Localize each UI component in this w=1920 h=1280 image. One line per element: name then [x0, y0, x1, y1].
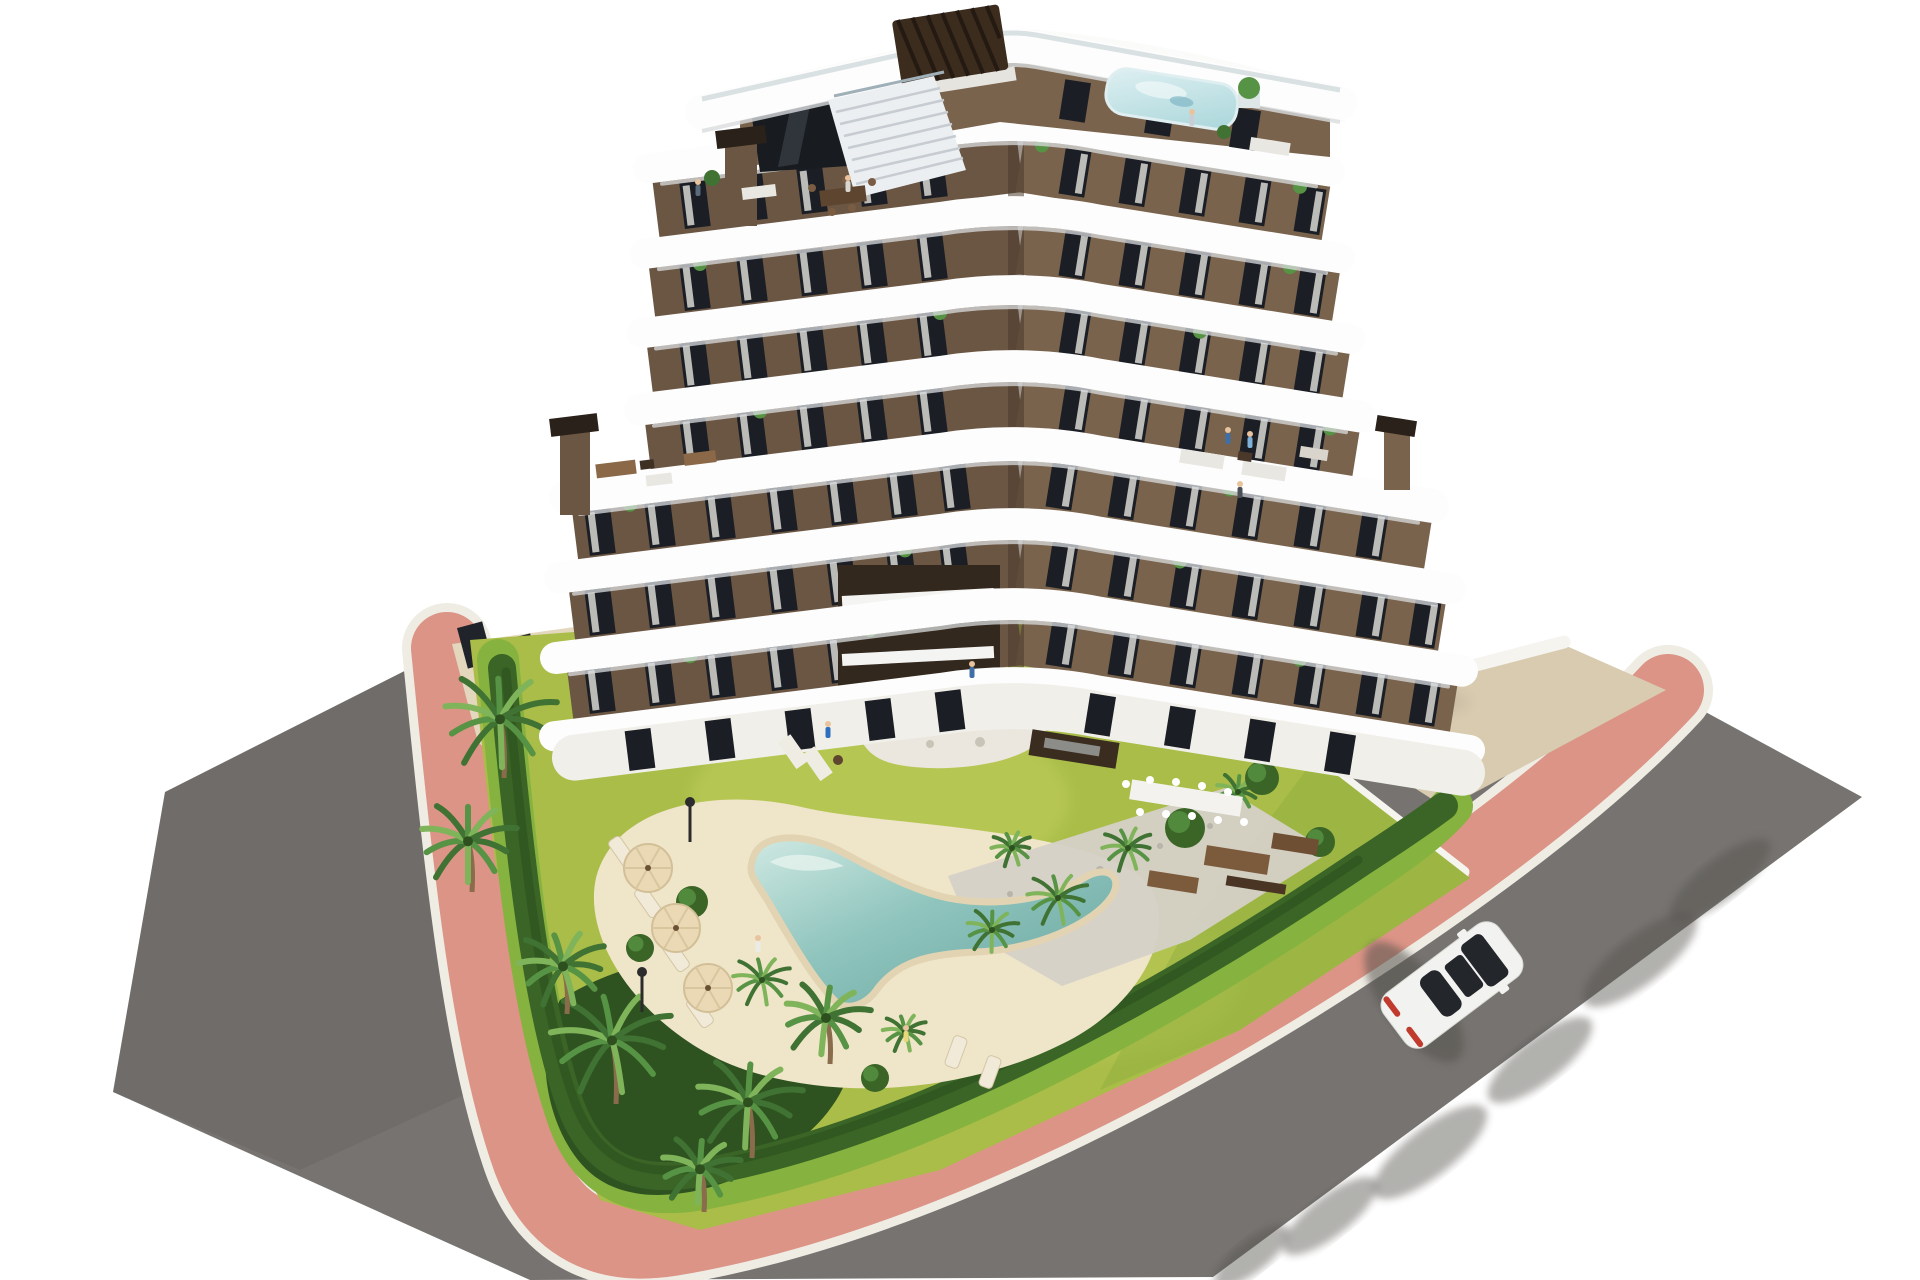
person-body: [756, 941, 761, 952]
shrub-highlight: [628, 936, 643, 951]
render-canvas: [0, 0, 1920, 1280]
shrub-highlight: [678, 888, 696, 906]
shrub-highlight: [1168, 811, 1190, 833]
person-head: [903, 1025, 909, 1031]
palm-crown: [1055, 895, 1061, 901]
aerial-render: [0, 0, 1920, 1280]
ground-glass-door: [865, 698, 896, 741]
person-body: [904, 1031, 909, 1042]
palm-crown: [558, 961, 568, 971]
person-body: [1248, 437, 1253, 448]
person: [755, 935, 761, 952]
palm-crown: [695, 1164, 705, 1174]
person-head: [1247, 431, 1253, 437]
person: [1189, 109, 1195, 126]
palm-frond: [498, 679, 500, 719]
person: [1237, 481, 1243, 498]
person-head: [969, 661, 975, 667]
palm-frond: [745, 1102, 748, 1147]
person-head: [1237, 481, 1243, 487]
person-body: [970, 667, 975, 678]
palm-frond: [698, 1169, 700, 1202]
shrub: [626, 934, 654, 962]
person-body: [846, 181, 851, 192]
person: [903, 1025, 909, 1042]
palm-crown: [1009, 845, 1015, 851]
person: [825, 721, 831, 738]
palm-crown: [463, 836, 473, 846]
parasol: [624, 844, 672, 892]
person-body: [696, 185, 701, 196]
person: [845, 175, 851, 192]
person-head: [845, 175, 851, 181]
person-head: [695, 179, 701, 185]
shrub: [1165, 808, 1205, 848]
parasol-pole: [673, 925, 679, 931]
shrub-highlight: [863, 1066, 878, 1081]
person-head: [825, 721, 831, 727]
shrub: [1245, 761, 1279, 795]
parasol: [652, 904, 700, 952]
palm-crown: [759, 977, 765, 983]
palm-crown: [1125, 845, 1131, 851]
person-body: [826, 727, 831, 738]
parasol: [684, 964, 732, 1012]
person: [1247, 431, 1253, 448]
palm-crown: [495, 714, 505, 724]
shrub-highlight: [1248, 764, 1267, 783]
chimney-right: [1375, 415, 1417, 490]
palm-frond: [500, 719, 502, 767]
palm-crown: [743, 1097, 753, 1107]
palm-crown: [989, 927, 995, 933]
parasol-pole: [645, 865, 651, 871]
person-head: [1189, 109, 1195, 115]
ground-glass-door: [625, 728, 656, 771]
ground-glass-door: [935, 689, 966, 732]
palm-crown: [607, 1035, 617, 1045]
person: [695, 179, 701, 196]
person-head: [1225, 427, 1231, 433]
palm-crown: [821, 1013, 831, 1023]
building-layer: [549, 3, 1470, 775]
person: [969, 661, 975, 678]
lamp-head: [637, 967, 647, 977]
person-body: [1190, 115, 1195, 126]
shrub: [861, 1064, 889, 1092]
person-head: [755, 935, 761, 941]
parasol-pole: [705, 985, 711, 991]
roof-planter: [1238, 77, 1260, 108]
lamp-head: [685, 797, 695, 807]
person: [1225, 427, 1231, 444]
palm-crown: [1235, 789, 1241, 795]
person-body: [1226, 433, 1231, 444]
ground-glass-door: [705, 718, 736, 761]
person-body: [1238, 487, 1243, 498]
